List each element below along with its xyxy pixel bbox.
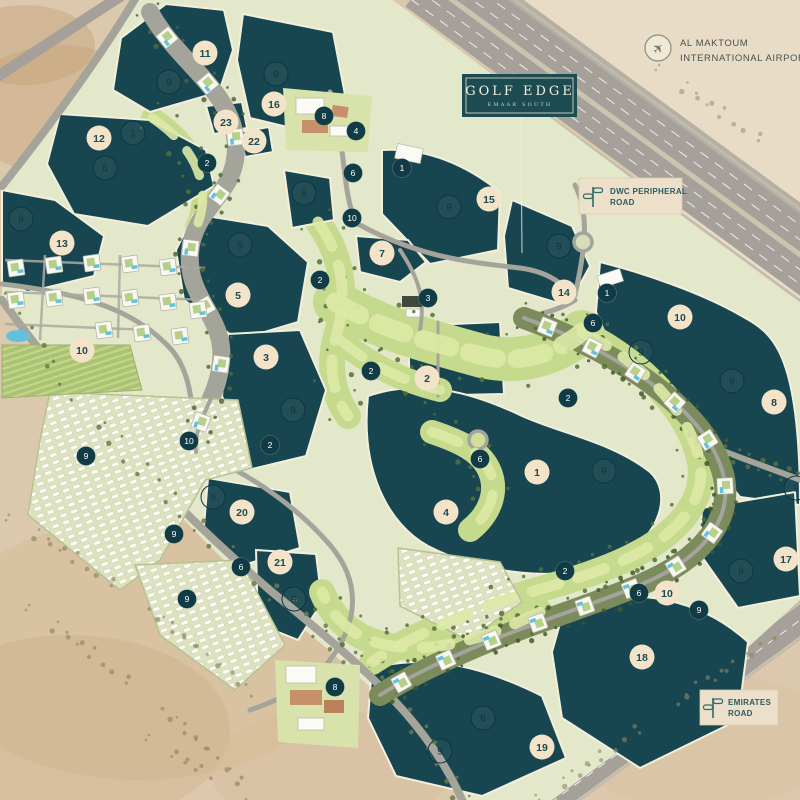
lake-number-marker: 9 xyxy=(720,369,744,393)
svg-text:9: 9 xyxy=(237,241,243,252)
svg-text:1: 1 xyxy=(400,163,405,173)
unit-number-marker: 9 xyxy=(690,601,709,620)
svg-text:17: 17 xyxy=(780,554,792,566)
plot-number-marker[interactable]: 4 xyxy=(434,500,459,525)
plot-number-marker[interactable]: 18 xyxy=(630,645,655,670)
plot-number-marker[interactable]: 17 xyxy=(774,547,799,572)
plot-number-marker[interactable]: 10 xyxy=(668,305,693,330)
lake-number-marker: 9 xyxy=(428,739,452,763)
plot-number-marker[interactable]: 10 xyxy=(70,338,95,363)
unit-number-marker: 8 xyxy=(326,678,345,697)
svg-text:2: 2 xyxy=(205,158,210,168)
svg-text:2: 2 xyxy=(566,393,571,403)
svg-text:22: 22 xyxy=(248,136,260,148)
svg-text:20: 20 xyxy=(236,507,248,519)
plot-number-marker[interactable]: 21 xyxy=(268,550,293,575)
svg-text:19: 19 xyxy=(536,742,548,754)
unit-number-marker: 4 xyxy=(347,122,366,141)
lake-number-marker: 9 xyxy=(729,559,753,583)
emirates-road-label: EMIRATES ROAD xyxy=(700,690,778,725)
apartment-block xyxy=(45,256,63,274)
svg-text:9: 9 xyxy=(601,467,607,478)
unit-number-marker: 2 xyxy=(261,436,280,455)
unit-number-marker: 2 xyxy=(198,154,217,173)
svg-text:5: 5 xyxy=(235,290,241,302)
unit-number-marker: 3 xyxy=(419,289,438,308)
svg-text:9: 9 xyxy=(437,747,443,758)
lake-number-marker: 9 xyxy=(437,195,461,219)
lake-number-marker: 6 xyxy=(93,156,117,180)
golf-edge-sign: GOLF EDGE EMAAR SOUTH xyxy=(462,74,577,117)
lake-number-marker: 6 xyxy=(292,181,316,205)
svg-text:6: 6 xyxy=(637,588,642,598)
unit-number-marker: 6 xyxy=(584,314,603,333)
apartment-block xyxy=(121,289,139,307)
svg-text:6: 6 xyxy=(351,168,356,178)
svg-text:9: 9 xyxy=(291,595,297,606)
plot-number-marker[interactable]: 14 xyxy=(552,280,577,305)
emirates-label-line2: ROAD xyxy=(728,709,753,718)
dwc-road-label: DWC PERIPHERAL ROAD xyxy=(579,178,687,214)
svg-text:6: 6 xyxy=(301,189,307,200)
svg-text:10: 10 xyxy=(347,213,357,223)
lake-number-marker: 9 xyxy=(157,70,181,94)
apartment-block xyxy=(45,289,63,307)
lake-number-marker: 9 xyxy=(281,398,305,422)
svg-text:6: 6 xyxy=(591,318,596,328)
svg-text:10: 10 xyxy=(661,588,673,600)
svg-text:15: 15 xyxy=(483,194,495,206)
masterplan-canvas: 1116232212137151451032108142021171018199… xyxy=(0,0,800,800)
svg-text:9: 9 xyxy=(290,406,296,417)
lake-number-marker: 9 xyxy=(9,207,33,231)
svg-text:8: 8 xyxy=(333,682,338,692)
svg-text:4: 4 xyxy=(443,507,449,519)
plot-number-marker[interactable]: 10 xyxy=(655,581,680,606)
apartment-block xyxy=(159,258,177,276)
svg-text:21: 21 xyxy=(274,557,286,569)
svg-text:13: 13 xyxy=(56,238,68,250)
plot-number-marker[interactable]: 2 xyxy=(415,366,440,391)
masterplan-map: 1116232212137151451032108142021171018199… xyxy=(0,0,800,800)
sign-title: GOLF EDGE xyxy=(465,84,575,99)
unit-number-marker: 2 xyxy=(311,271,330,290)
svg-text:9: 9 xyxy=(84,451,89,461)
lake-number-marker: 9 xyxy=(201,485,225,509)
plot-number-marker[interactable]: 11 xyxy=(193,41,218,66)
svg-text:14: 14 xyxy=(558,287,570,299)
unit-number-marker: 10 xyxy=(180,432,199,451)
plot-number-marker[interactable]: 22 xyxy=(242,129,267,154)
svg-text:2: 2 xyxy=(563,566,568,576)
plot-number-marker[interactable]: 1 xyxy=(525,460,550,485)
unit-number-marker: 8 xyxy=(315,107,334,126)
unit-number-marker: 9 xyxy=(178,590,197,609)
airport-label-line1: AL MAKTOUM xyxy=(680,38,748,49)
unit-number-marker: 1 xyxy=(393,159,412,178)
svg-text:4: 4 xyxy=(354,126,359,136)
sign-subtitle: EMAAR SOUTH xyxy=(488,102,553,108)
plot-number-marker[interactable]: 7 xyxy=(370,241,395,266)
lake-number-marker: 9 xyxy=(264,62,288,86)
svg-text:10: 10 xyxy=(76,345,88,357)
plot-number-marker[interactable]: 13 xyxy=(50,231,75,256)
svg-text:10: 10 xyxy=(674,312,686,324)
svg-text:18: 18 xyxy=(636,652,648,664)
svg-text:3: 3 xyxy=(426,293,431,303)
unit-number-marker: 6 xyxy=(471,450,490,469)
svg-text:6: 6 xyxy=(480,714,486,725)
emirates-label-line1: EMIRATES xyxy=(728,698,772,707)
unit-number-marker: 9 xyxy=(77,447,96,466)
lake-number-marker: 6 xyxy=(471,706,495,730)
svg-text:2: 2 xyxy=(268,440,273,450)
svg-text:12: 12 xyxy=(93,133,105,145)
unit-number-marker: 10 xyxy=(343,209,362,228)
unit-number-marker: 6 xyxy=(630,584,649,603)
plot-number-marker[interactable]: 5 xyxy=(226,283,251,308)
svg-text:9: 9 xyxy=(185,594,190,604)
apartment-block xyxy=(717,478,734,495)
apartment-block xyxy=(189,301,207,319)
svg-text:1: 1 xyxy=(130,129,136,140)
unit-number-marker: 2 xyxy=(559,389,578,408)
plot-number-marker[interactable]: 12 xyxy=(87,126,112,151)
svg-text:9: 9 xyxy=(18,215,24,226)
lake-number-marker: 9 xyxy=(228,233,252,257)
apartment-block xyxy=(83,287,101,305)
svg-text:9: 9 xyxy=(556,242,562,253)
airport-label-line2: INTERNATIONAL AIRPORT xyxy=(680,53,800,64)
svg-text:6: 6 xyxy=(239,562,244,572)
lake-number-marker: 9 xyxy=(547,234,571,258)
svg-text:2: 2 xyxy=(424,373,430,385)
plot-number-marker[interactable]: 19 xyxy=(530,735,555,760)
apartment-block xyxy=(83,254,101,272)
svg-text:9: 9 xyxy=(166,78,172,89)
unit-number-marker: 1 xyxy=(598,284,617,303)
apartment-block xyxy=(7,259,25,277)
dwc-label-line2: ROAD xyxy=(610,198,635,207)
plot-number-marker[interactable]: 8 xyxy=(762,390,787,415)
lake-number-marker: 9 xyxy=(592,459,616,483)
svg-text:11: 11 xyxy=(199,48,210,60)
svg-text:1: 1 xyxy=(605,288,610,298)
svg-text:9: 9 xyxy=(446,203,452,214)
svg-text:9: 9 xyxy=(210,493,216,504)
svg-text:23: 23 xyxy=(220,117,232,129)
svg-text:9: 9 xyxy=(273,70,279,81)
apartment-block xyxy=(171,327,189,345)
svg-text:2: 2 xyxy=(369,366,374,376)
apartment-block xyxy=(212,355,230,373)
lake-number-marker: 9 xyxy=(629,340,653,364)
dwc-label-line1: DWC PERIPHERAL xyxy=(610,187,687,196)
lake-number-marker: 1 xyxy=(121,121,145,145)
apartment-block xyxy=(159,293,177,311)
unit-number-marker: 2 xyxy=(362,362,381,381)
plot-number-marker[interactable]: 23 xyxy=(214,110,239,135)
svg-text:9: 9 xyxy=(172,529,177,539)
svg-text:9: 9 xyxy=(793,484,799,495)
svg-text:3: 3 xyxy=(263,352,269,364)
svg-text:9: 9 xyxy=(738,567,744,578)
svg-text:9: 9 xyxy=(638,348,644,359)
unit-number-marker: 2 xyxy=(556,562,575,581)
svg-text:9: 9 xyxy=(729,377,735,388)
apartment-block xyxy=(121,255,139,273)
svg-text:6: 6 xyxy=(478,454,483,464)
plot-number-marker[interactable]: 3 xyxy=(254,345,279,370)
svg-text:16: 16 xyxy=(268,99,280,111)
svg-text:6: 6 xyxy=(102,164,108,175)
plot-number-marker[interactable]: 15 xyxy=(477,187,502,212)
lake-number-marker: 9 xyxy=(282,587,306,611)
apartment-block xyxy=(7,291,25,309)
unit-number-marker: 9 xyxy=(165,525,184,544)
unit-number-marker: 6 xyxy=(344,164,363,183)
svg-text:8: 8 xyxy=(322,111,327,121)
svg-text:10: 10 xyxy=(184,436,194,446)
svg-text:7: 7 xyxy=(379,248,385,260)
plot-number-marker[interactable]: 20 xyxy=(230,500,255,525)
apartment-block xyxy=(182,239,200,257)
unit-number-marker: 6 xyxy=(232,558,251,577)
svg-text:1: 1 xyxy=(534,467,540,479)
svg-text:2: 2 xyxy=(318,275,323,285)
svg-text:9: 9 xyxy=(697,605,702,615)
apartment-block xyxy=(133,324,151,342)
plot-number-marker[interactable]: 16 xyxy=(262,92,287,117)
apartment-block xyxy=(95,321,113,339)
svg-text:8: 8 xyxy=(771,397,777,409)
